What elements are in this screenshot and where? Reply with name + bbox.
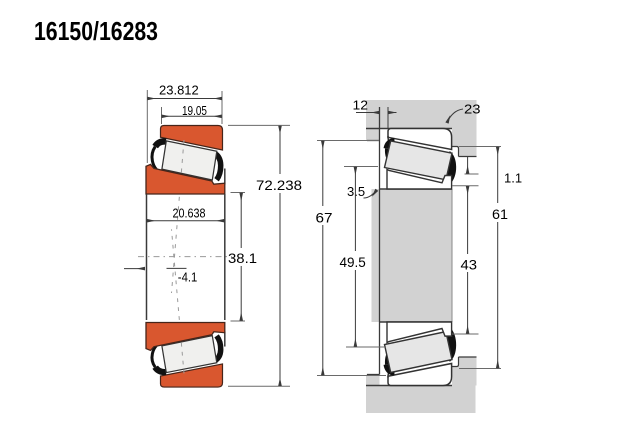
svg-text:72.238: 72.238	[256, 177, 302, 193]
svg-text:49.5: 49.5	[340, 255, 366, 270]
svg-text:43: 43	[461, 257, 478, 273]
svg-text:23: 23	[464, 102, 481, 117]
svg-text:20.638: 20.638	[173, 206, 206, 221]
svg-text:61: 61	[492, 206, 508, 222]
svg-text:1.1: 1.1	[504, 171, 522, 186]
svg-text:67: 67	[316, 210, 333, 226]
svg-text:16150/16283: 16150/16283	[34, 16, 158, 46]
svg-text:19.05: 19.05	[182, 103, 207, 118]
svg-text:-4.1: -4.1	[178, 269, 198, 284]
svg-text:23.812: 23.812	[159, 83, 199, 98]
svg-text:3.5: 3.5	[347, 184, 365, 199]
svg-text:12: 12	[353, 98, 369, 113]
svg-text:38.1: 38.1	[228, 250, 257, 266]
